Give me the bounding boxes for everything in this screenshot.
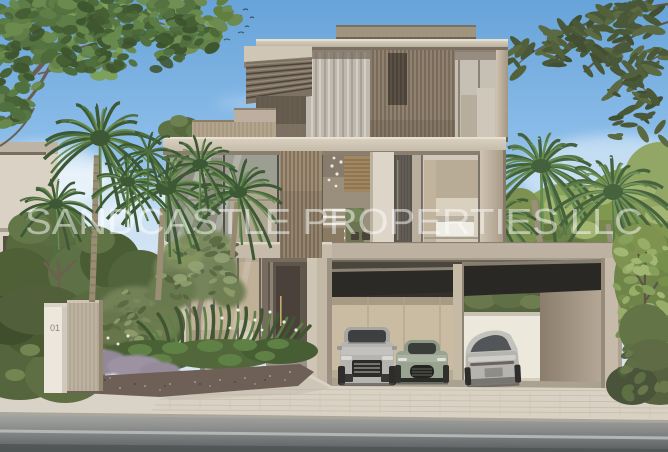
- svg-text:01: 01: [50, 323, 60, 333]
- svg-text:SANDCASTLE PROPERTIES LLC: SANDCASTLE PROPERTIES LLC: [25, 201, 643, 242]
